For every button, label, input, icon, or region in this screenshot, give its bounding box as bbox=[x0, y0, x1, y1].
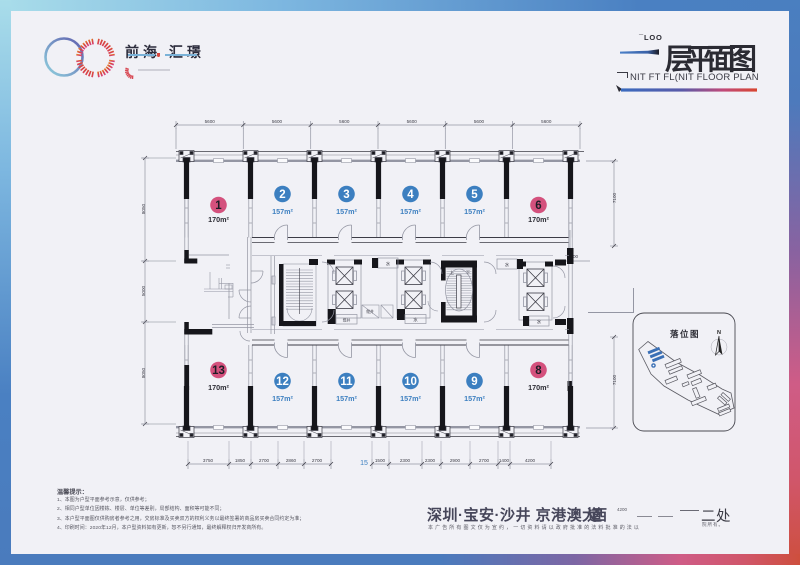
svg-text:缆井: 缆井 bbox=[343, 318, 351, 323]
svg-text:落位图: 落位图 bbox=[670, 329, 700, 339]
svg-text:水: 水 bbox=[413, 317, 418, 323]
svg-text:170m²: 170m² bbox=[528, 215, 549, 224]
svg-text:5600: 5600 bbox=[339, 119, 350, 124]
svg-text:13: 13 bbox=[212, 365, 225, 377]
svg-text:5600: 5600 bbox=[541, 119, 552, 124]
svg-text:1500: 1500 bbox=[375, 458, 386, 463]
svg-text:5: 5 bbox=[471, 189, 478, 201]
svg-text:7100: 7100 bbox=[612, 192, 617, 203]
svg-text:157m²: 157m² bbox=[336, 207, 357, 216]
svg-text:170m²: 170m² bbox=[208, 215, 229, 224]
svg-text:9: 9 bbox=[471, 376, 477, 388]
svg-text:2: 2 bbox=[279, 189, 285, 201]
svg-text:下: 下 bbox=[466, 270, 470, 276]
svg-text:2300: 2300 bbox=[400, 458, 411, 463]
svg-text:157m²: 157m² bbox=[464, 394, 485, 403]
svg-text:4: 4 bbox=[407, 189, 414, 201]
svg-text:上: 上 bbox=[450, 269, 454, 275]
svg-text:水: 水 bbox=[537, 319, 542, 325]
svg-text:12: 12 bbox=[276, 376, 289, 388]
svg-text:15: 15 bbox=[360, 460, 368, 467]
svg-text:水: 水 bbox=[386, 261, 391, 267]
svg-text:157m²: 157m² bbox=[464, 207, 485, 216]
svg-text:N: N bbox=[717, 330, 721, 336]
svg-text:7100: 7100 bbox=[612, 374, 617, 385]
svg-text:4200: 4200 bbox=[525, 458, 536, 463]
svg-text:1400: 1400 bbox=[499, 458, 510, 463]
svg-text:10: 10 bbox=[404, 376, 417, 388]
svg-text:水: 水 bbox=[505, 262, 510, 268]
svg-text:5600: 5600 bbox=[407, 119, 418, 124]
svg-text:5600: 5600 bbox=[474, 119, 485, 124]
svg-text:170m²: 170m² bbox=[208, 383, 229, 392]
svg-text:11: 11 bbox=[340, 376, 353, 388]
svg-text:2300: 2300 bbox=[425, 458, 436, 463]
svg-text:1: 1 bbox=[215, 200, 222, 212]
svg-text:157m²: 157m² bbox=[400, 394, 421, 403]
svg-text:2700: 2700 bbox=[259, 458, 270, 463]
svg-text:5600: 5600 bbox=[205, 119, 216, 124]
svg-text:157m²: 157m² bbox=[272, 394, 293, 403]
svg-text:3: 3 bbox=[343, 189, 349, 201]
svg-text:2700: 2700 bbox=[479, 458, 490, 463]
svg-text:157m²: 157m² bbox=[400, 207, 421, 216]
svg-text:2900: 2900 bbox=[450, 458, 461, 463]
svg-text:5600: 5600 bbox=[272, 119, 283, 124]
svg-text:2860: 2860 bbox=[286, 458, 297, 463]
svg-text:8: 8 bbox=[535, 365, 542, 377]
svg-text:170m²: 170m² bbox=[528, 383, 549, 392]
svg-text:6: 6 bbox=[535, 200, 541, 212]
svg-text:157m²: 157m² bbox=[336, 394, 357, 403]
svg-text:3750: 3750 bbox=[203, 458, 214, 463]
svg-text:2700: 2700 bbox=[312, 458, 323, 463]
svg-text:1850: 1850 bbox=[235, 458, 246, 463]
svg-text:缆井: 缆井 bbox=[366, 309, 374, 314]
svg-text:157m²: 157m² bbox=[272, 207, 293, 216]
svg-text:8050: 8050 bbox=[141, 203, 146, 214]
svg-text:5000: 5000 bbox=[141, 285, 146, 296]
svg-text:8050: 8050 bbox=[141, 367, 146, 378]
